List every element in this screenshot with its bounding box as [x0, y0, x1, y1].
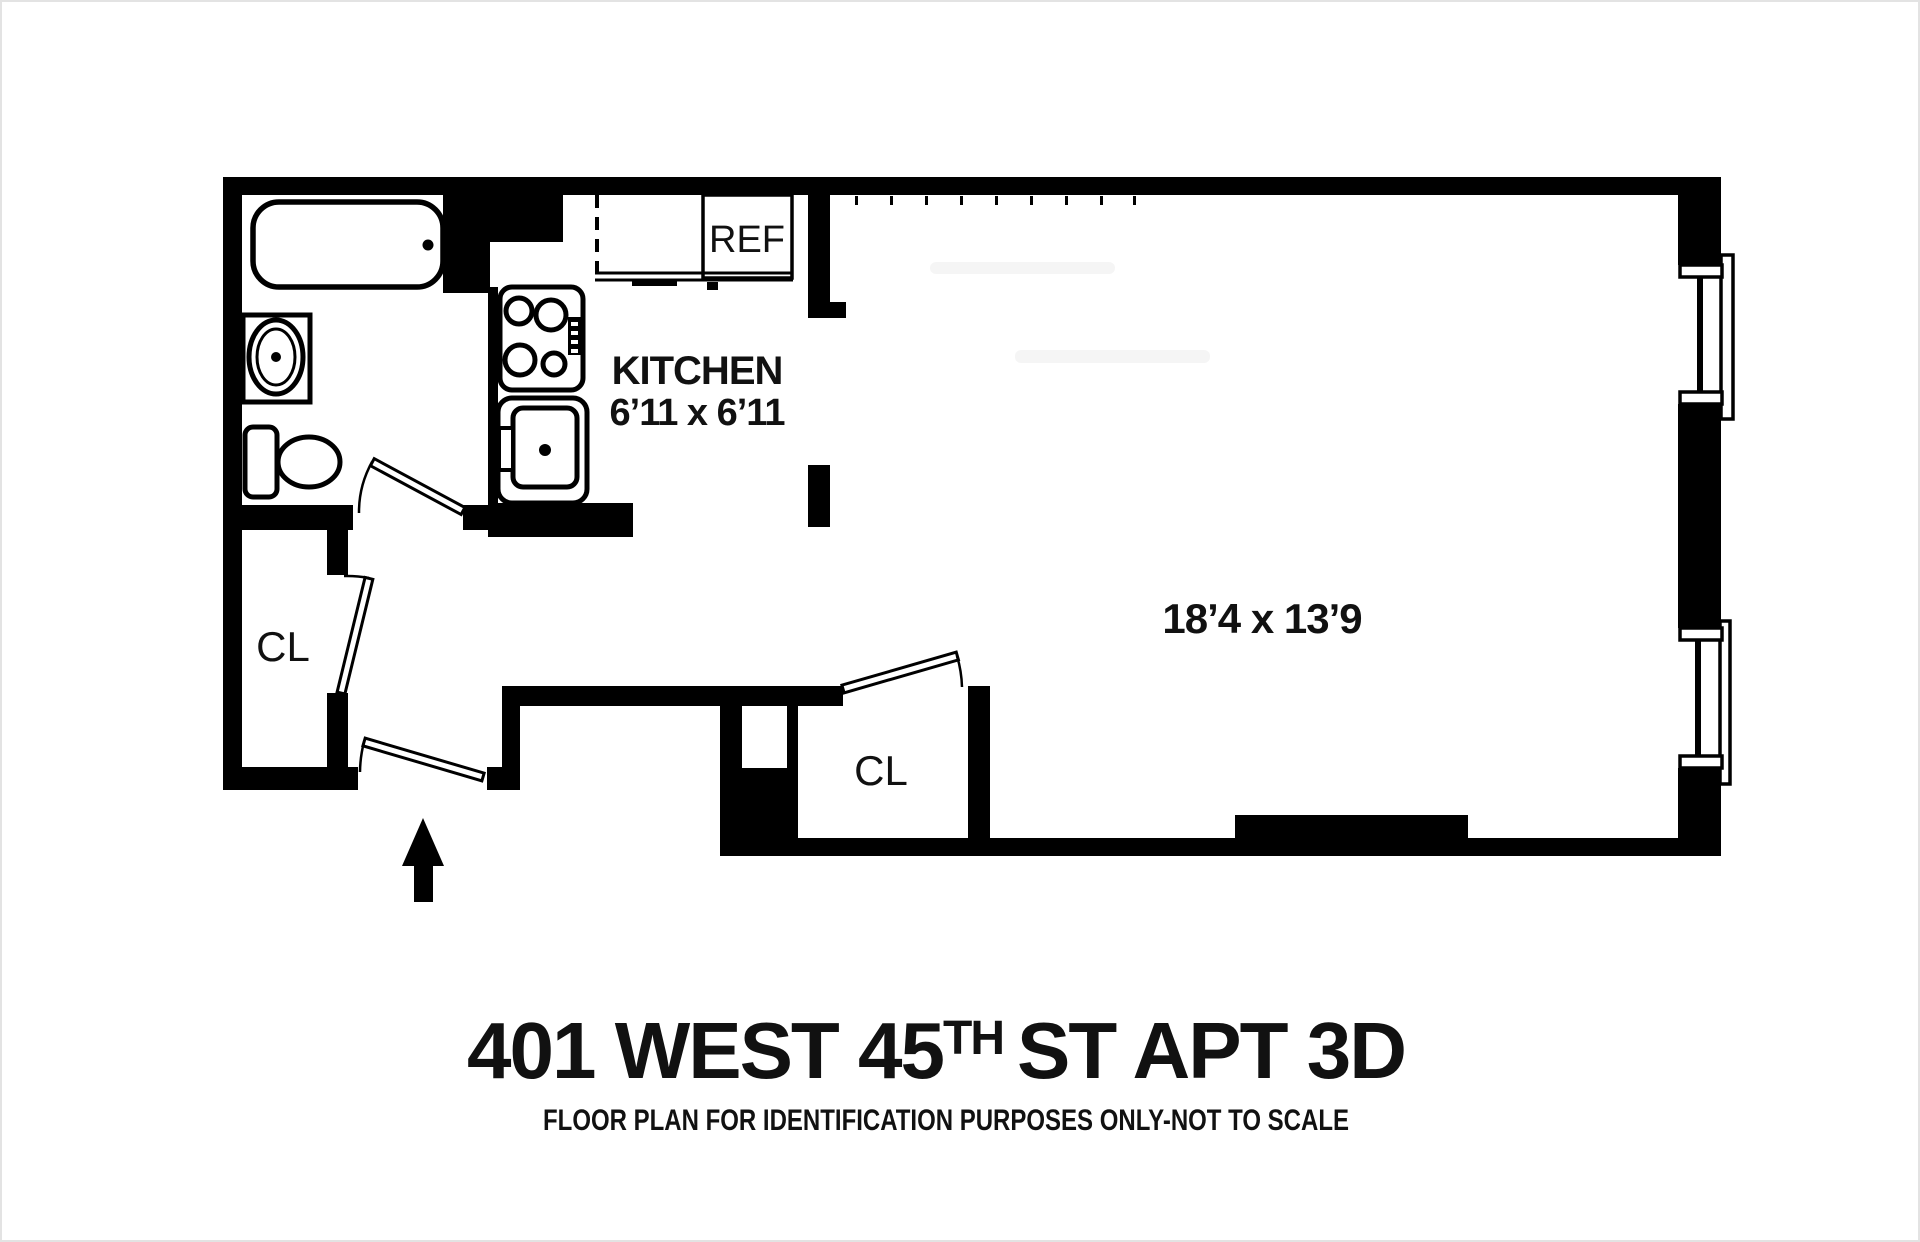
bathtub-drain [423, 240, 434, 251]
entry-arrow-shaft [414, 866, 433, 902]
top-wall-ticks [855, 196, 1136, 205]
entry-arrow-icon [402, 818, 444, 902]
floor-plan-page: REF KITCHEN 6’11 x 6’11 18’4 x 13’9 CL C… [0, 0, 1920, 1242]
corridor-south-wall [502, 686, 843, 706]
bath-kitchen-wall-mass [443, 177, 490, 293]
window-sill-top [1680, 628, 1722, 640]
bathroom-door-leaf [370, 459, 464, 515]
kitchen-south-wall [488, 503, 633, 537]
closet-middle-east-wall [968, 686, 990, 856]
closet-left-door [337, 577, 373, 694]
stove-burner [543, 353, 565, 375]
bathroom-sink-drain [271, 352, 281, 362]
kitchen-faucet [499, 428, 513, 470]
window-sill-top [1680, 265, 1722, 277]
counter-tick [707, 282, 718, 290]
title-rest: ST APT 3D [1017, 1006, 1405, 1095]
radiator-bump [1235, 815, 1468, 838]
plan-title: 401 WEST 45THST APT 3D [467, 1006, 1405, 1095]
stove-knob [571, 331, 578, 335]
closet-left-wall-upper-stub [327, 530, 348, 575]
artifact-smudge [1015, 350, 1210, 363]
stove-knob [571, 340, 578, 344]
closet-left-wall-lower-stub [327, 693, 348, 770]
window-sill-bottom [1680, 392, 1722, 404]
closet-middle-door-leaf [842, 652, 959, 693]
closet-middle-label: CL [854, 747, 908, 794]
kitchen-living-divider-lower [808, 465, 830, 527]
window-sill-bottom [1680, 756, 1722, 768]
bathtub [253, 202, 443, 287]
closet-middle-west-thin-wall [787, 706, 798, 768]
kitchen-upper-wall-mass [490, 177, 563, 242]
wall-bottom-left [223, 767, 358, 790]
tick-mark [1030, 196, 1033, 205]
stove-knob [571, 349, 578, 353]
closet-left-door-swing-arc [344, 576, 369, 578]
entry-door [363, 738, 484, 781]
stove-knob [571, 322, 578, 326]
bathroom-door-stub [463, 505, 490, 530]
closet-middle-door-swing-arc [957, 656, 962, 687]
kitchen-living-divider-cap [830, 302, 846, 318]
tick-mark [925, 196, 928, 205]
tick-mark [995, 196, 998, 205]
wall-right-middle [1678, 404, 1721, 628]
entry-arrow-head [402, 818, 444, 866]
tick-mark [960, 196, 963, 205]
closet-left-label: CL [256, 623, 310, 670]
title-superscript: TH [943, 1012, 1003, 1065]
closet-middle-door [842, 652, 959, 693]
plan-subtitle: FLOOR PLAN FOR IDENTIFICATION PURPOSES O… [543, 1102, 1349, 1136]
bathroom-south-wall [223, 505, 353, 530]
floor-plan-drawing: REF KITCHEN 6’11 x 6’11 18’4 x 13’9 CL C… [0, 0, 1920, 1242]
tick-mark [1133, 196, 1136, 205]
wall-right-upper [1678, 195, 1721, 265]
wall-bottom-main [965, 838, 1721, 856]
window-lower [1680, 621, 1730, 784]
doors [337, 459, 962, 781]
title-main: 401 WEST 45 [467, 1006, 944, 1095]
living-room-dimensions: 18’4 x 13’9 [1162, 595, 1361, 642]
refrigerator-label: REF [709, 219, 785, 261]
closet-middle-west-bar [720, 706, 742, 768]
kitchen-sink-drain [539, 444, 551, 456]
tick-mark [855, 196, 858, 205]
scan-artifacts [930, 262, 1210, 363]
kitchen-dimensions: 6’11 x 6’11 [610, 392, 786, 434]
closet-middle-west-mass [720, 768, 798, 856]
bathroom-door-swing-arc [359, 462, 372, 513]
stove-burner [506, 298, 532, 324]
toilet-tank [245, 427, 277, 497]
tick-mark [1100, 196, 1103, 205]
title-block: 401 WEST 45THST APT 3D FLOOR PLAN FOR ID… [467, 1006, 1405, 1137]
bathroom [243, 202, 443, 497]
stove-burner [505, 345, 535, 375]
plan-subtitle-group: FLOOR PLAN FOR IDENTIFICATION PURPOSES O… [543, 1102, 1349, 1136]
counter-tick [632, 281, 677, 286]
entry-door-swing-arc [360, 742, 364, 772]
entry-door-leaf [363, 738, 484, 781]
tick-mark [1065, 196, 1068, 205]
closet-middle-bottom-wall [787, 838, 990, 856]
stove-burner [536, 300, 566, 330]
tick-mark [890, 196, 893, 205]
wall-left [223, 177, 242, 790]
bathroom-door [370, 459, 464, 515]
kitchen-living-divider-upper [808, 195, 830, 318]
toilet-bowl [278, 437, 340, 487]
closet-left-door-leaf [337, 577, 373, 694]
window-upper [1680, 255, 1733, 419]
kitchen-label: KITCHEN [612, 349, 783, 393]
artifact-smudge [930, 262, 1115, 274]
